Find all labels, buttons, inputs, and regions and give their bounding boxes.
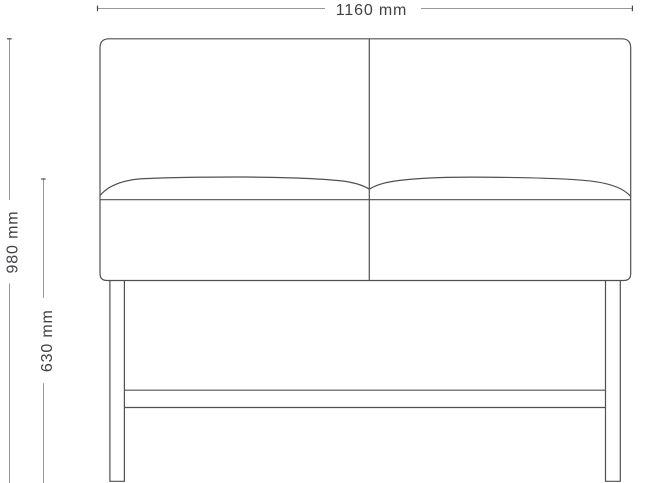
svg-text:980 mm: 980 mm <box>5 211 22 274</box>
svg-text:1160 mm: 1160 mm <box>336 2 407 19</box>
svg-text:630 mm: 630 mm <box>39 309 56 372</box>
